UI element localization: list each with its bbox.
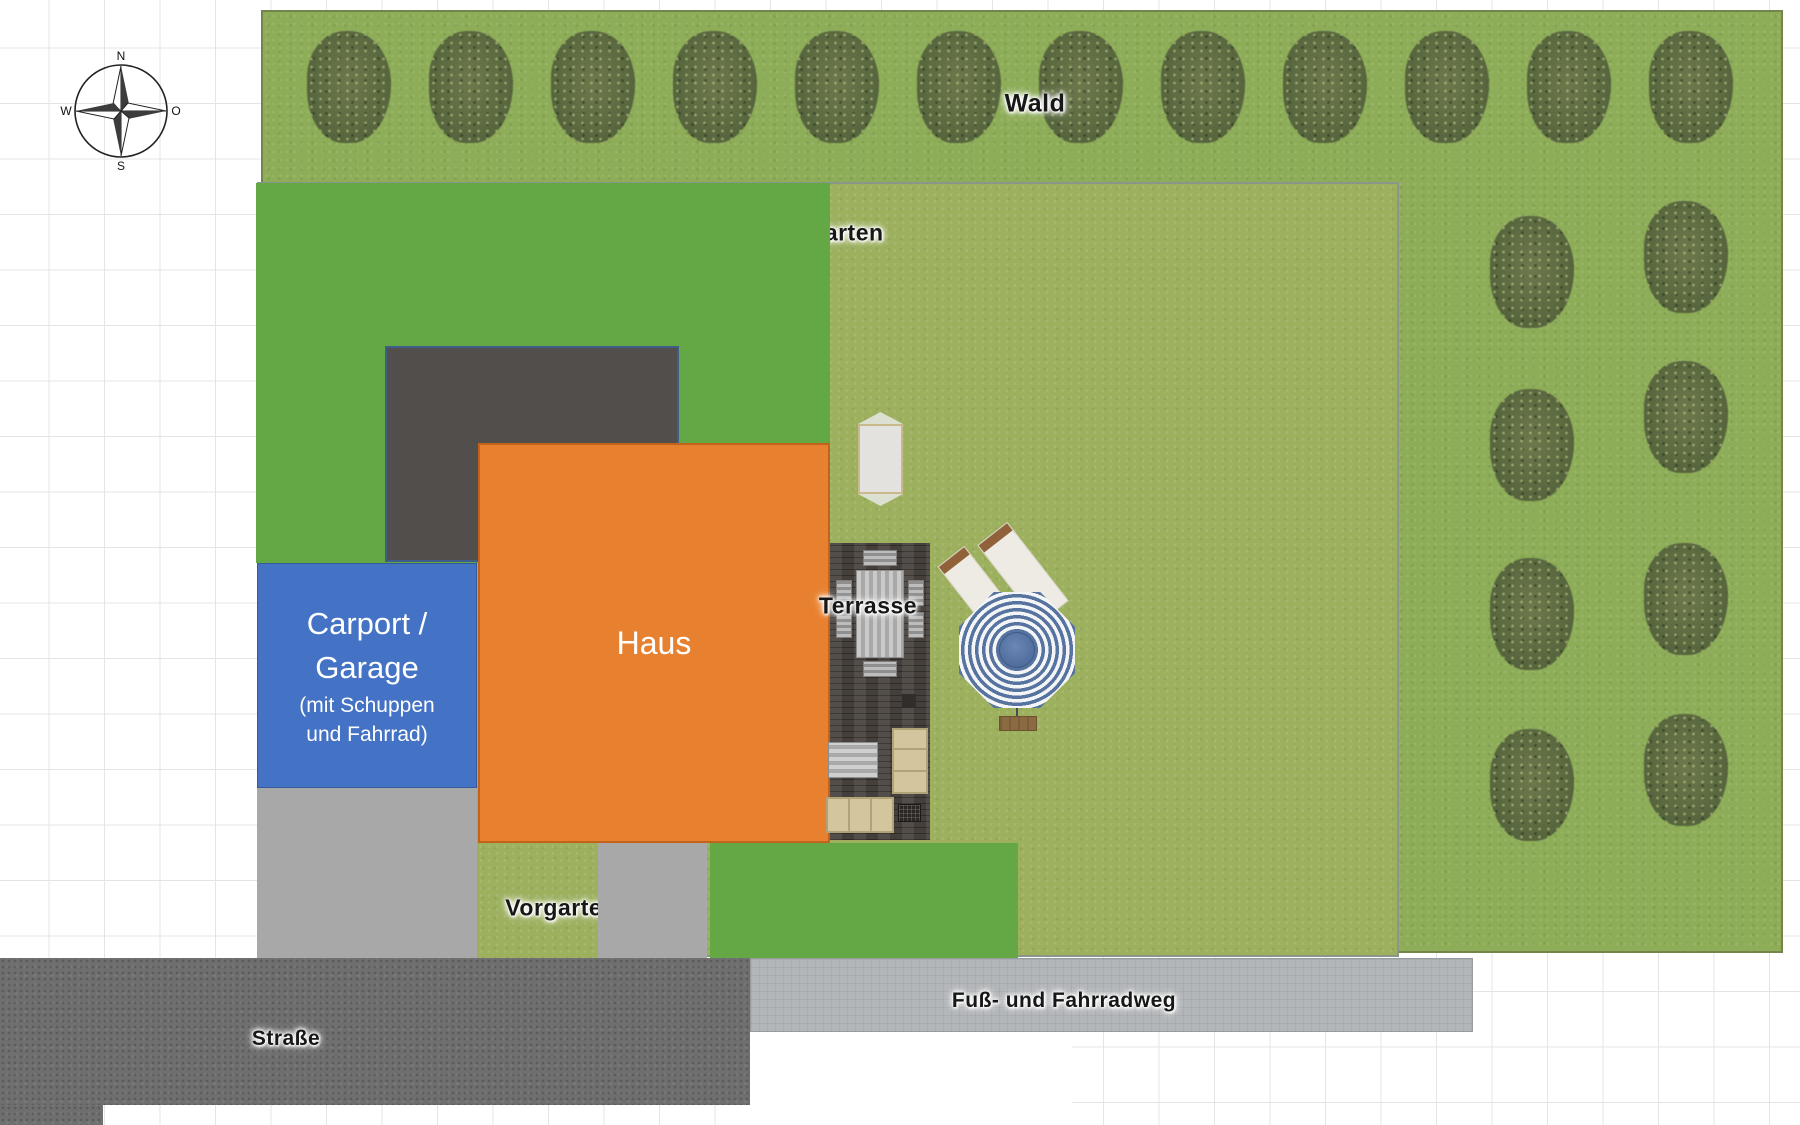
side-table[interactable] xyxy=(902,694,916,708)
paved-area-front[interactable] xyxy=(257,788,477,958)
tree[interactable] xyxy=(1644,201,1728,313)
terrasse-label: Terrasse xyxy=(819,593,917,620)
tree[interactable] xyxy=(1490,729,1574,841)
site-plan-canvas: Garten Vorgarten Carport / Garage (mit S… xyxy=(0,0,1800,1125)
tree[interactable] xyxy=(1161,31,1245,143)
carport-label-line1: Carport / xyxy=(307,603,428,645)
compass-s-label: S xyxy=(117,159,125,173)
sofa[interactable] xyxy=(892,728,928,794)
strasse-label: Straße xyxy=(252,1027,320,1051)
carport-label-line2: Garage xyxy=(315,645,418,691)
door-path-area[interactable] xyxy=(598,843,707,958)
tree[interactable] xyxy=(307,31,391,143)
lawn-back-area[interactable] xyxy=(710,843,1018,958)
tree[interactable] xyxy=(673,31,757,143)
tree[interactable] xyxy=(1039,31,1123,143)
chair[interactable] xyxy=(863,661,897,677)
tree[interactable] xyxy=(1527,31,1611,143)
tree[interactable] xyxy=(1644,543,1728,655)
tree[interactable] xyxy=(795,31,879,143)
parasol-base xyxy=(999,716,1037,731)
tree[interactable] xyxy=(1490,216,1574,328)
wald-label: Wald xyxy=(1005,90,1066,119)
grill[interactable] xyxy=(898,804,921,822)
blank-patch xyxy=(750,1032,1072,1125)
chair[interactable] xyxy=(863,550,897,566)
tree[interactable] xyxy=(1405,31,1489,143)
tree[interactable] xyxy=(1490,558,1574,670)
tree[interactable] xyxy=(1283,31,1367,143)
compass-w-label: W xyxy=(60,104,72,118)
tree[interactable] xyxy=(1490,389,1574,501)
tree[interactable] xyxy=(551,31,635,143)
tree[interactable] xyxy=(917,31,1001,143)
hammock[interactable] xyxy=(858,424,903,494)
tree[interactable] xyxy=(429,31,513,143)
haus-label: Haus xyxy=(617,625,692,662)
street-area[interactable] xyxy=(0,958,750,1105)
tree[interactable] xyxy=(1644,714,1728,826)
compass-rose-icon: N S W O xyxy=(58,48,184,174)
coffee-table[interactable] xyxy=(828,742,878,778)
sofa[interactable] xyxy=(826,797,894,833)
parasol-top xyxy=(999,632,1035,668)
carport-label-line3: (mit Schuppen xyxy=(299,691,434,720)
compass-n-label: N xyxy=(117,49,126,63)
haus-area[interactable]: Haus xyxy=(478,443,830,843)
fussweg-label: Fuß- und Fahrradweg xyxy=(952,989,1176,1013)
tree[interactable] xyxy=(1649,31,1733,143)
carport-garage-area[interactable]: Carport / Garage (mit Schuppen und Fahrr… xyxy=(257,563,477,788)
tree[interactable] xyxy=(1644,361,1728,473)
carport-label-line4: und Fahrrad) xyxy=(306,720,427,749)
compass-o-label: O xyxy=(171,104,180,118)
street-area-extension xyxy=(0,1105,103,1125)
